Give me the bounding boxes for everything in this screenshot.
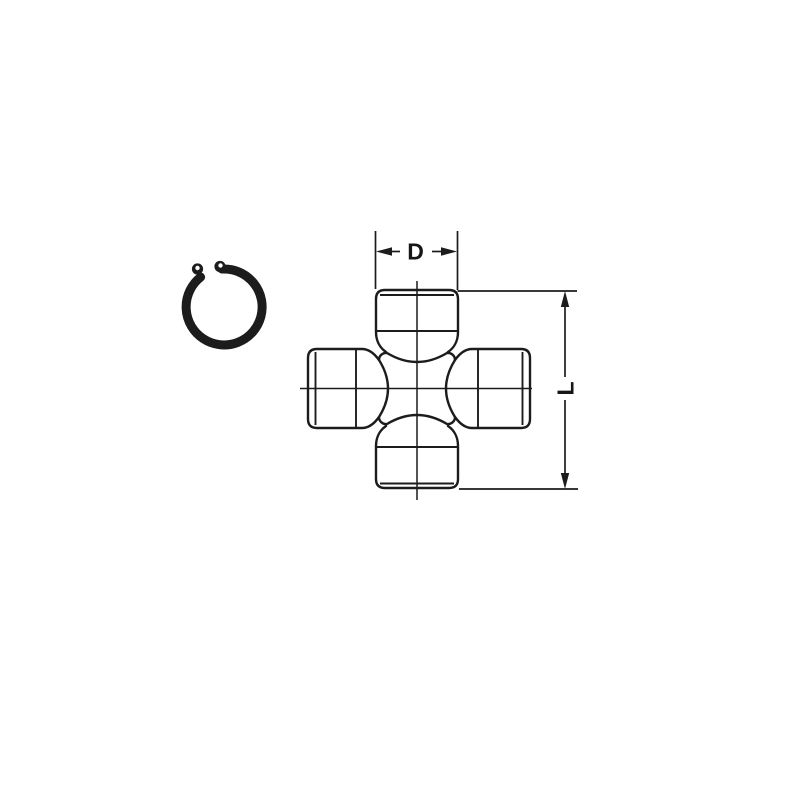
universal-joint-diagram: D L: [0, 0, 800, 800]
dimension-l-arrow-bottom: [561, 473, 569, 489]
technical-drawing-canvas: D L: [0, 0, 800, 800]
dimension-label-l: L: [553, 381, 579, 395]
snap-ring-right-lug-hole: [218, 263, 222, 267]
universal-joint-cross: [300, 281, 532, 500]
dimension-d-arrow-right: [441, 247, 457, 255]
snap-ring: [186, 261, 262, 345]
dimension-l-arrow-top: [561, 291, 569, 307]
dimension-label-d: D: [407, 239, 424, 265]
dimension-d-arrow-left: [376, 247, 392, 255]
snap-ring-body: [186, 269, 262, 345]
drawing-ink: D L: [186, 231, 578, 500]
snap-ring-left-lug-hole: [195, 266, 199, 270]
dimension-l: L: [458, 291, 579, 489]
